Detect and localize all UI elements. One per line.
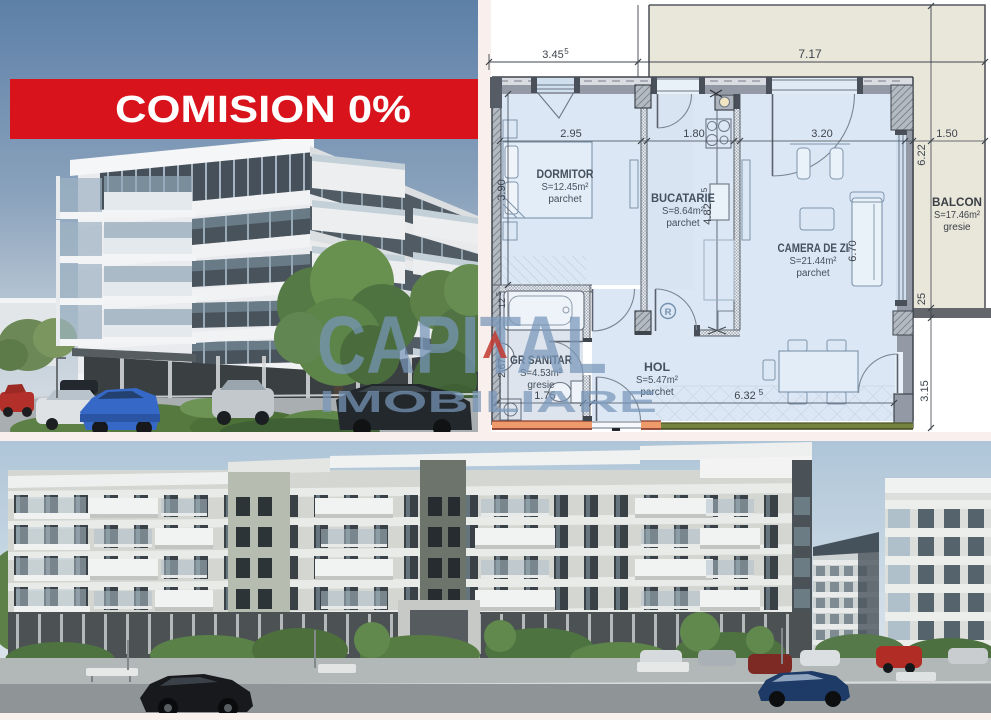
- svg-text:2.95: 2.95: [560, 128, 581, 140]
- svg-text:5: 5: [496, 292, 503, 296]
- svg-text:IMOBILIARE: IMOBILIARE: [319, 384, 657, 419]
- svg-text:3.90: 3.90: [496, 179, 508, 200]
- svg-text:6.32: 6.32: [734, 390, 755, 402]
- svg-text:S=17.46m²: S=17.46m²: [934, 210, 981, 221]
- svg-text:6.70: 6.70: [847, 240, 859, 261]
- svg-text:25: 25: [916, 293, 928, 305]
- svg-text:parchet: parchet: [666, 218, 700, 229]
- svg-text:S=12.45m²: S=12.45m²: [542, 182, 590, 193]
- svg-text:HOL: HOL: [644, 360, 670, 374]
- svg-text:DORMITOR: DORMITOR: [537, 167, 594, 181]
- svg-text:3.15: 3.15: [919, 380, 931, 401]
- svg-text:5: 5: [759, 388, 764, 397]
- svg-text:S=21.44m²: S=21.44m²: [790, 256, 838, 267]
- svg-text:gresie: gresie: [943, 222, 971, 233]
- svg-text:1.50: 1.50: [936, 128, 957, 140]
- svg-text:1.80: 1.80: [683, 128, 704, 140]
- svg-text:5: 5: [564, 47, 569, 56]
- svg-text:S=8.64m²: S=8.64m²: [662, 206, 705, 217]
- svg-text:3.45: 3.45: [542, 49, 563, 61]
- svg-text:7.17: 7.17: [798, 47, 822, 61]
- svg-text:R: R: [665, 307, 672, 318]
- svg-text:6.22: 6.22: [916, 144, 928, 165]
- svg-text:BUCATARIE: BUCATARIE: [651, 191, 715, 205]
- svg-text:COMISION 0%: COMISION 0%: [115, 89, 411, 131]
- svg-text:CAMERA DE ZI: CAMERA DE ZI: [778, 241, 849, 255]
- svg-text:parchet: parchet: [548, 194, 582, 205]
- svg-text:3.20: 3.20: [811, 128, 832, 140]
- svg-text:CAPITAL: CAPITAL: [317, 300, 607, 391]
- svg-text:parchet: parchet: [796, 268, 830, 279]
- svg-text:BALCON: BALCON: [932, 195, 982, 209]
